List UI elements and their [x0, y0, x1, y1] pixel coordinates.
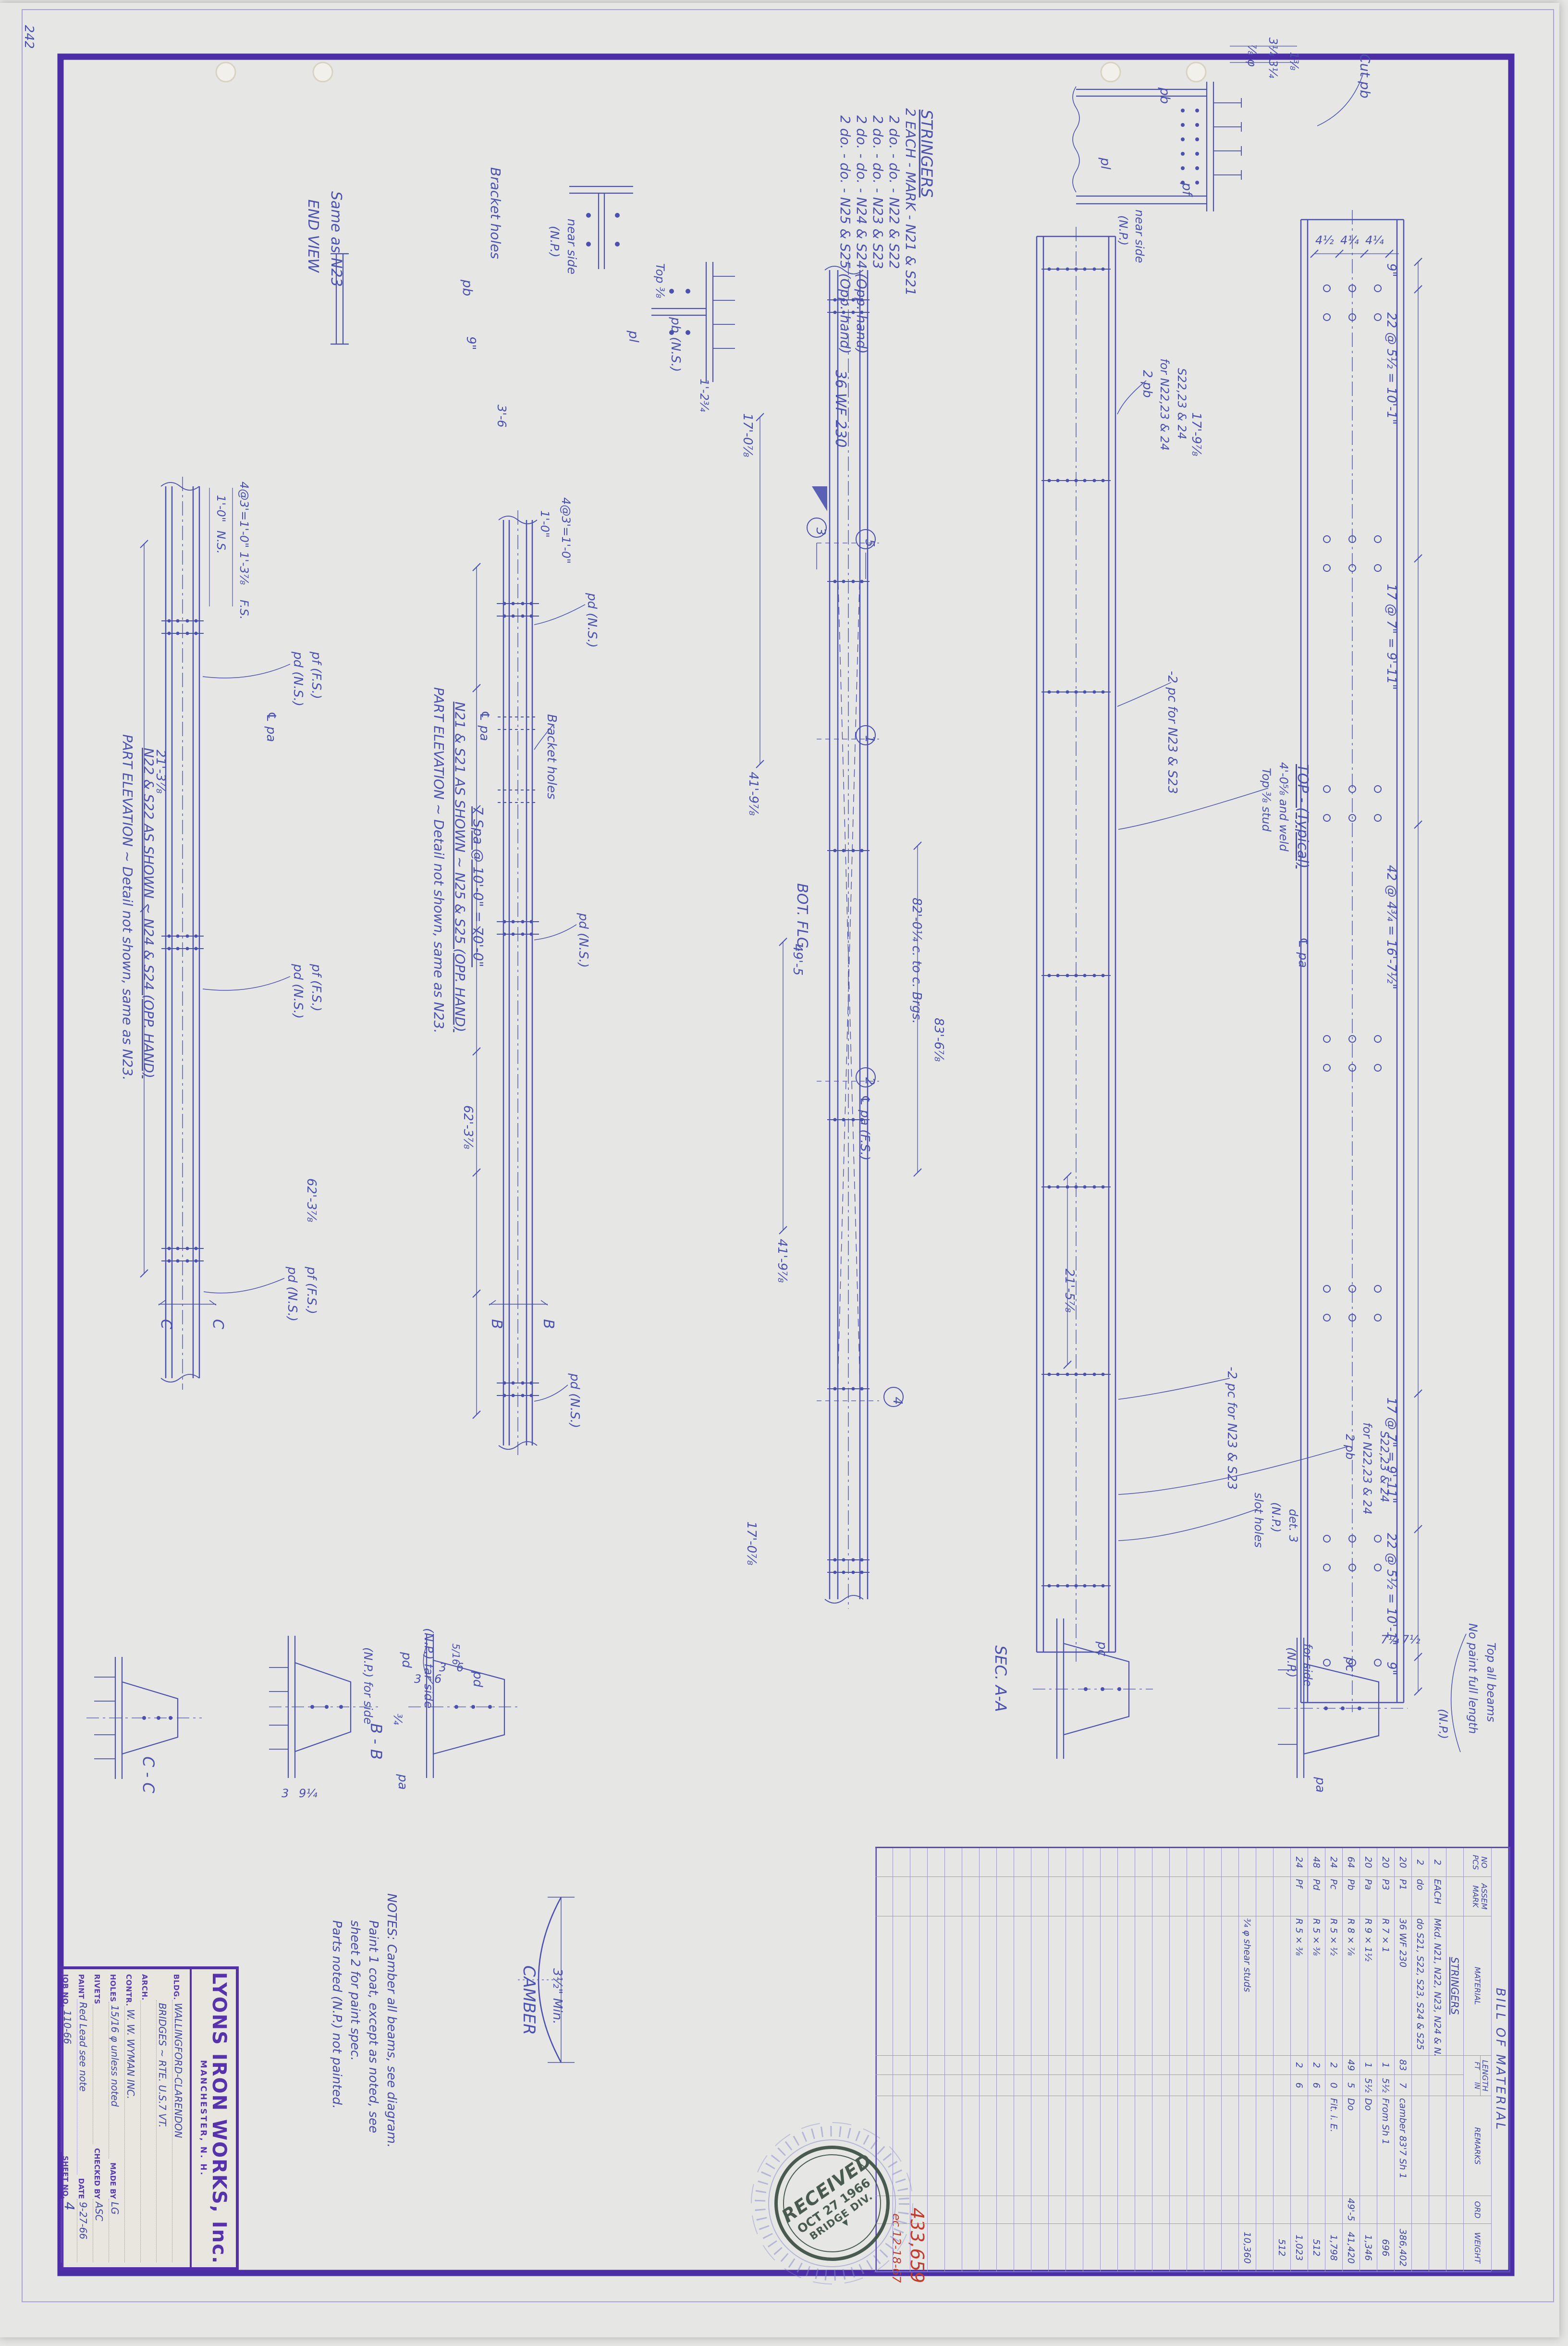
drawing-label: pd (N.S.) — [576, 913, 590, 968]
drawing-label: 62'-3⅞ — [304, 1178, 318, 1222]
bom-cell — [1135, 2056, 1152, 2075]
bom-cell — [1117, 2075, 1135, 2096]
bom-cell — [1429, 2096, 1446, 2196]
bom-cell — [1204, 1916, 1221, 2056]
bom-cell: Do — [1360, 2096, 1377, 2196]
bom-cell — [1238, 1848, 1256, 1877]
bom-cell: 6 — [1308, 2075, 1325, 2096]
drawing-label: Cut pb — [1357, 54, 1373, 99]
bom-cell: 1,346 — [1360, 2224, 1377, 2272]
bom-cell — [1377, 2196, 1394, 2224]
bom-cell — [927, 2075, 944, 2096]
bom-cell — [927, 2096, 944, 2196]
drawing-label: pl — [626, 330, 641, 343]
bom-cell — [1048, 2056, 1066, 2075]
bom-cell — [944, 2056, 962, 2075]
drawing-label: 17'-0⅞ — [744, 1521, 759, 1565]
drawing-label: -2 pc for N23 & S23 — [1225, 1367, 1239, 1490]
bom-cell: 2 — [1411, 1848, 1429, 1877]
bom-cell — [979, 1848, 996, 1877]
bom-cell — [1048, 1916, 1066, 2056]
bom-cell — [1429, 2056, 1446, 2075]
bom-cell — [1308, 2096, 1325, 2196]
bom-cell — [1048, 2075, 1066, 2096]
drawing-label: C - C — [139, 1756, 158, 1793]
madeby-label: MADE BY — [109, 2162, 117, 2199]
bom-cell — [1100, 2056, 1117, 2075]
bom-cell — [1135, 1848, 1152, 1877]
bom-cell — [1429, 2196, 1446, 2224]
bom-cell — [1066, 1916, 1083, 2056]
drawing-label: 1⅜ — [1287, 52, 1301, 71]
bom-cell: 2 — [1308, 2056, 1325, 2075]
bom-cell: 20 — [1360, 1848, 1377, 1877]
drawing-label: near side — [1133, 210, 1146, 263]
drawing-label: 3 — [439, 1661, 446, 1674]
bom-cell: R 8 × ⅞ — [1342, 1916, 1360, 2056]
sheetno-value: 4 — [61, 2199, 77, 2262]
drawing-label: 9" — [1384, 263, 1398, 277]
drawing-label: Top ⅜ stud — [1260, 768, 1273, 832]
bom-cell — [962, 1848, 979, 1877]
bom-cell — [1290, 2096, 1308, 2196]
bom-cell — [927, 2196, 944, 2224]
bom-cell — [1221, 1848, 1238, 1877]
drawing-label: 1 — [862, 735, 877, 743]
bom-cell — [1411, 2056, 1429, 2075]
bom-cell: 48 — [1308, 1848, 1325, 1877]
bom-cell — [1204, 2224, 1221, 2272]
drawing-label: END VIEW — [305, 199, 321, 273]
drawing-label: ¾ — [391, 1714, 404, 1725]
bom-cell — [996, 2224, 1014, 2272]
bom-cell — [1411, 2196, 1429, 2224]
drawing-label: pc — [1095, 1641, 1109, 1656]
bom-cell: camber 83'7 Sh 1 — [1394, 2096, 1411, 2196]
bldg-label: BLDG. — [172, 1974, 181, 2000]
bom-cell: 49'-5 — [1342, 2196, 1360, 2224]
note-line: Parts noted (N.P.) not painted. — [328, 1893, 346, 2172]
drawing-label: TOP - (Typical) — [1294, 764, 1311, 868]
drawing-label: N.S. — [214, 531, 228, 554]
drawing-label: C — [158, 1319, 174, 1329]
bom-cell — [1100, 2196, 1117, 2224]
bom-cell — [1273, 2056, 1290, 2075]
bom-cell — [1221, 2096, 1238, 2196]
bom-cell — [1238, 1877, 1256, 1916]
bom-header-mark: ASSEMMARK — [1463, 1877, 1491, 1916]
bom-cell — [1031, 1916, 1048, 2056]
bom-cell — [1411, 2096, 1429, 2196]
bom-cell — [1031, 1877, 1048, 1916]
bom-cell — [910, 2224, 927, 2272]
drawing-label: for side — [1301, 1643, 1314, 1687]
bom-cell — [1169, 1848, 1187, 1877]
bom-cell: STRINGERS — [1446, 1916, 1463, 2056]
drawing-label: 1'-0" — [214, 495, 228, 522]
bom-cell — [910, 2075, 927, 2096]
sheetno-label: SHEET NO. — [61, 2156, 70, 2199]
bom-cell — [1187, 1877, 1204, 1916]
bom-cell — [979, 2096, 996, 2196]
note-line: Paint 1 coat, except as noted, see — [364, 1893, 382, 2172]
bom-cell — [1083, 2196, 1100, 2224]
bom-cell — [1187, 1916, 1204, 2056]
bom-cell: 2 — [1429, 1848, 1446, 1877]
bom-cell: Fit. i. E. — [1325, 2096, 1342, 2196]
note-line: sheet 2 for paint spec. — [346, 1893, 364, 2172]
bom-cell — [1135, 2224, 1152, 2272]
bom-cell: 41,420 — [1342, 2224, 1360, 2272]
bom-cell: 512 — [1308, 2224, 1325, 2272]
drawing-label: pf (F.S.) — [309, 651, 323, 699]
bom-cell: 386,402 — [1394, 2224, 1411, 2272]
bom-cell — [893, 2224, 910, 2272]
bom-cell: 5½ — [1360, 2075, 1377, 2096]
bom-cell — [962, 2224, 979, 2272]
drawing-label: 1'-2¾ — [698, 379, 711, 412]
bom-cell — [1031, 2056, 1048, 2075]
bom-cell — [910, 2056, 927, 2075]
drawing-label: 2 pb — [1343, 1434, 1357, 1459]
drawing-label: 1'-0" — [538, 510, 551, 538]
bom-cell: 2 — [1290, 2056, 1308, 2075]
drawing-label: 2 EACH - MARK - N21 & S21 — [903, 108, 919, 296]
bom-cell — [1100, 2096, 1117, 2196]
bom-cell: 512 — [1273, 2224, 1290, 2272]
drawing-label: pa — [395, 1774, 410, 1790]
bom-cell — [1014, 1848, 1031, 1877]
bom-cell — [944, 1877, 962, 1916]
bom-cell — [1083, 1916, 1100, 2056]
bom-cell — [1083, 1877, 1100, 1916]
madeby-value: LG — [109, 2199, 121, 2262]
bom-cell — [979, 2224, 996, 2272]
date-value: 9-27-66 — [77, 2199, 89, 2262]
bom-cell: 64 — [1342, 1848, 1360, 1877]
bom-cell: Pf — [1290, 1877, 1308, 1916]
bom-cell — [893, 1877, 910, 1916]
bom-cell: 49 — [1342, 2056, 1360, 2075]
bom-cell — [875, 2056, 893, 2075]
drawing-label: ℄ pa — [477, 710, 491, 741]
bom-cell — [1446, 2075, 1463, 2096]
checkedby-value: ASC — [93, 2199, 105, 2262]
bom-cell — [910, 2096, 927, 2196]
bom-cell — [910, 1877, 927, 1916]
bom-cell — [1152, 2196, 1169, 2224]
bom-cell — [1117, 2224, 1135, 2272]
bom-cell — [1117, 2096, 1135, 2196]
drawing-label: 2 do. - do. - N24 & S24 (Opp. hand) — [854, 115, 870, 354]
bom-cell — [875, 1877, 893, 1916]
bom-cell — [1135, 2196, 1152, 2224]
drawing-label: N21 & S21 AS SHOWN ~ N25 & S25 (OPP. HAN… — [452, 702, 468, 1032]
bom-cell — [1169, 2224, 1187, 2272]
bom-cell — [1204, 2096, 1221, 2196]
bom-rows: STRINGERS2EACHMkd. N21, N22, N23, N24 & … — [875, 1848, 1463, 2271]
drawing-label: B — [488, 1319, 505, 1329]
drawing-label: pl — [1098, 157, 1113, 170]
bom-cell: Pa — [1360, 1877, 1377, 1916]
bom-cell — [962, 2075, 979, 2096]
bom-cell — [962, 1877, 979, 1916]
bom-cell — [1014, 2196, 1031, 2224]
drawing-label: 1'-3⅞ — [237, 552, 251, 585]
bom-cell: Mkd. N21, N22, N23, N24 & N25 — [1429, 1916, 1446, 2056]
paint-label: PAINT — [77, 1974, 86, 1999]
drawing-label: for N22,23 & 24 — [1360, 1422, 1374, 1515]
drawing-label: 2 pb — [1140, 370, 1154, 398]
bom-cell — [1066, 2224, 1083, 2272]
bom-cell — [1100, 1916, 1117, 2056]
bom-cell — [1066, 2196, 1083, 2224]
bom-cell — [1221, 2056, 1238, 2075]
bom-cell — [1238, 2056, 1256, 2075]
drawing-label: 2 do. - do. - N25 & S25 (Opp. hand) — [837, 115, 853, 354]
date-label: DATE — [77, 2178, 86, 2199]
bom-cell: R 9 × 1½ — [1360, 1916, 1377, 2056]
bom-cell — [1066, 2075, 1083, 2096]
contr-value: W. W. WYMAN INC. — [124, 2006, 136, 2262]
bom-cell — [1014, 2096, 1031, 2196]
bom-cell — [1014, 2075, 1031, 2096]
drawing-label: 4'-0⅝ and weld — [1277, 762, 1290, 852]
bom-cell — [1204, 2196, 1221, 2224]
bom-cell: R 5 × ⅜ — [1290, 1916, 1308, 2056]
bom-cell — [979, 1877, 996, 1916]
bom-cell — [927, 1877, 944, 1916]
drawing-label: pd (N.S.) — [585, 593, 599, 648]
bom-cell — [1152, 1916, 1169, 2056]
bom-cell: 7 — [1394, 2075, 1411, 2096]
bom-cell — [1273, 1916, 1290, 2056]
bom-cell — [1256, 1916, 1273, 2056]
drawing-label: N22 & S22 AS SHOWN ~ N24 & S24 (OPP. HAN… — [141, 748, 157, 1078]
bom-cell — [944, 2096, 962, 2196]
bill-of-material: BILL OF MATERIAL NOPCS ASSEMMARK MATERIA… — [875, 1847, 1510, 2272]
bom-cell — [1446, 1877, 1463, 1916]
bom-cell: 20 — [1394, 1848, 1411, 1877]
bom-cell — [875, 2075, 893, 2096]
drawing-label: ℄ pa (F.S.) — [857, 1095, 872, 1161]
drawing-label: pc — [1343, 1656, 1357, 1672]
bom-cell — [927, 2224, 944, 2272]
bom-cell — [944, 2196, 962, 2224]
scanned-shop-drawing-sheet: 242END VIEWSame as N23Bracket holes(N.P.… — [0, 0, 1568, 2346]
drawing-label: 4¼ — [1365, 234, 1384, 247]
bom-cell — [893, 1848, 910, 1877]
bom-cell — [1429, 2075, 1446, 2096]
bom-cell — [1273, 2075, 1290, 2096]
bom-header-ord: ORD — [1463, 2196, 1491, 2224]
drawing-label: 82'-0¼ c. to c. Brgs. — [909, 898, 924, 1024]
bom-cell — [1256, 2056, 1273, 2075]
bom-cell: 2 — [1325, 2056, 1342, 2075]
drawing-label: 83'-6⅞ — [931, 1018, 946, 1062]
bom-cell — [1325, 2196, 1342, 2224]
bom-cell — [1221, 2075, 1238, 2096]
bom-cell — [1169, 2056, 1187, 2075]
drawing-label: 17 @ 7" = 9'-11" — [1384, 1397, 1398, 1504]
bom-cell — [1014, 1877, 1031, 1916]
drawing-label: SEC. A-A — [992, 1645, 1010, 1712]
bom-cell: 696 — [1377, 2224, 1394, 2272]
bom-cell — [1169, 2096, 1187, 2196]
bom-cell — [1273, 2196, 1290, 2224]
bom-cell — [1100, 1848, 1117, 1877]
drawing-label: ℄ pa — [1296, 937, 1310, 968]
bom-cell — [1429, 2224, 1446, 2272]
bom-cell — [1083, 2056, 1100, 2075]
drawing-label: (N.P.) — [1285, 1647, 1298, 1678]
jobno-label: JOB NO. — [61, 1974, 70, 2007]
bom-header-material: MATERIAL — [1463, 1916, 1491, 2056]
rivets-value — [93, 2004, 93, 2144]
drawing-label: B — [540, 1319, 557, 1329]
bom-cell — [1117, 1877, 1135, 1916]
bom-cell — [1169, 1877, 1187, 1916]
bom-cell — [996, 1877, 1014, 1916]
bom-cell — [893, 2056, 910, 2075]
bom-cell — [875, 1848, 893, 1877]
drawing-label: BOT. FLG. — [794, 883, 810, 953]
bom-header-row: NOPCS ASSEMMARK MATERIAL LENGTH FTIN REM… — [1463, 1848, 1491, 2271]
drawing-label: CAMBER — [519, 1965, 539, 2035]
bom-cell: 1 — [1360, 2056, 1377, 2075]
bom-cell: 83 — [1394, 2056, 1411, 2075]
bom-cell — [1083, 2224, 1100, 2272]
drawing-label: 36 WF 230 — [832, 370, 849, 447]
drawing-label: 2 do. - do. - N22 & S22 — [886, 115, 902, 269]
bom-cell — [1411, 2075, 1429, 2096]
bom-cell — [962, 2056, 979, 2075]
bom-cell — [979, 1916, 996, 2056]
bom-cell — [1256, 2196, 1273, 2224]
drawing-label: 5 — [862, 539, 877, 547]
bom-cell — [1014, 1916, 1031, 2056]
drawing-label: 242 — [22, 25, 36, 49]
drawing-label: 41'-9⅞ — [775, 1239, 789, 1283]
bom-cell — [1169, 2075, 1187, 2096]
bom-cell — [1031, 2096, 1048, 2196]
bom-cell — [893, 1916, 910, 2056]
bom-cell — [1411, 2224, 1429, 2272]
drawing-label: B - B — [367, 1723, 385, 1760]
bom-cell: 1 — [1377, 2056, 1394, 2075]
bom-cell — [1446, 2224, 1463, 2272]
bom-cell — [1083, 2096, 1100, 2196]
cross-sections — [86, 1618, 1466, 1779]
bom-cell — [1394, 2196, 1411, 2224]
drawing-label: pd (N.S.) — [285, 1266, 299, 1321]
bom-cell — [1256, 1848, 1273, 1877]
bom-cell — [1238, 2196, 1256, 2224]
bom-cell — [1135, 1877, 1152, 1916]
bom-cell: 0 — [1325, 2075, 1342, 2096]
bldg-value-2: BRIDGES ~ RTE. U.S.7 VT. — [156, 2000, 168, 2262]
bom-cell — [1204, 2056, 1221, 2075]
bom-cell — [1446, 1848, 1463, 1877]
rivets-label: RIVETS — [93, 1974, 101, 2004]
bom-cell: Pb — [1342, 1877, 1360, 1916]
drawing-label: pb — [460, 279, 475, 296]
jobno-value: 110-66 — [61, 2007, 73, 2152]
bom-cell: R 7 × 1 — [1377, 1916, 1394, 2056]
bom-cell: 6 — [1290, 2075, 1308, 2096]
drawing-label: pd (N.S.) — [291, 963, 305, 1019]
bom-cell: Pc — [1325, 1877, 1342, 1916]
bom-cell — [1048, 2224, 1066, 2272]
drawing-label: 9" — [1384, 1662, 1398, 1676]
bom-header-pcs: NOPCS — [1463, 1848, 1491, 1877]
bldg-value: WALLINGFORD-CLARENDON — [172, 2000, 184, 2262]
drawing-label: (N.P.) — [1436, 1709, 1450, 1739]
bom-cell — [1187, 2075, 1204, 2096]
drawing-label: 17 @ 7" = 9'-11" — [1384, 584, 1398, 690]
bom-cell — [893, 2096, 910, 2196]
drawing-label: pd — [470, 1671, 485, 1688]
drawing-label: Bracket holes — [544, 714, 559, 799]
bom-cell — [1066, 2056, 1083, 2075]
drawing-label: 3 — [282, 1787, 289, 1800]
arch-value — [140, 2000, 141, 2262]
drawing-label: 5/16 — [450, 1643, 462, 1665]
bom-cell — [1187, 2096, 1204, 2196]
company-name: LYONS IRON WORKS, Inc. — [208, 1969, 236, 2267]
bom-cell — [1135, 1916, 1152, 2056]
company-logo-block: LYONS IRON WORKS, Inc. MANCHESTER, N. H. — [190, 1969, 236, 2267]
bom-cell — [944, 2224, 962, 2272]
bom-cell — [996, 2056, 1014, 2075]
bom-cell — [1221, 2196, 1238, 2224]
drawing-label: 17'-9⅞ — [1189, 412, 1203, 456]
bom-cell — [1169, 1916, 1187, 2056]
drawing-label: F.S. — [237, 600, 251, 619]
bom-cell — [1117, 1916, 1135, 2056]
drawing-label: pb — [1157, 87, 1172, 104]
drawing-label: pb (N.S.) — [668, 317, 683, 372]
bom-cell — [1360, 2196, 1377, 2224]
bom-cell — [1238, 2096, 1256, 2196]
bom-cell — [1031, 1848, 1048, 1877]
drawing-label: (N.P.) for side — [361, 1647, 375, 1725]
bom-cell — [1117, 2056, 1135, 2075]
drawing-label: 2 do. - do. - N23 & S23 — [870, 115, 886, 269]
drawing-label: det. 3 — [1286, 1509, 1300, 1543]
bom-cell: 20 — [1377, 1848, 1394, 1877]
bom-cell: 24 — [1290, 1848, 1308, 1877]
bom-cell — [1256, 2224, 1273, 2272]
bom-cell — [1048, 1877, 1066, 1916]
drawing-label: 22 @ 5½ = 10'-1" — [1384, 1533, 1398, 1645]
bom-cell — [1446, 2196, 1463, 2224]
bom-header-remarks: REMARKS — [1463, 2096, 1491, 2196]
drawing-label: pf (F.S.) — [304, 1266, 318, 1314]
punch-holes — [216, 62, 1206, 82]
bom-cell — [1256, 2096, 1273, 2196]
bom-cell — [996, 1848, 1014, 1877]
holes-label: HOLES — [109, 1974, 117, 2002]
bom-cell: ¾ φ shear studs — [1238, 1916, 1256, 2056]
bom-cell — [1446, 2056, 1463, 2075]
drawing-label: 2 — [862, 1077, 877, 1086]
bom-cell — [1204, 1848, 1221, 1877]
title-block: LYONS IRON WORKS, Inc. MANCHESTER, N. H.… — [60, 1966, 239, 2270]
bom-cell: R 5 × ⅜ — [1308, 1916, 1325, 2056]
drawing-label: 4½ — [1315, 234, 1334, 247]
drawing-label: slot holes — [1252, 1493, 1265, 1548]
